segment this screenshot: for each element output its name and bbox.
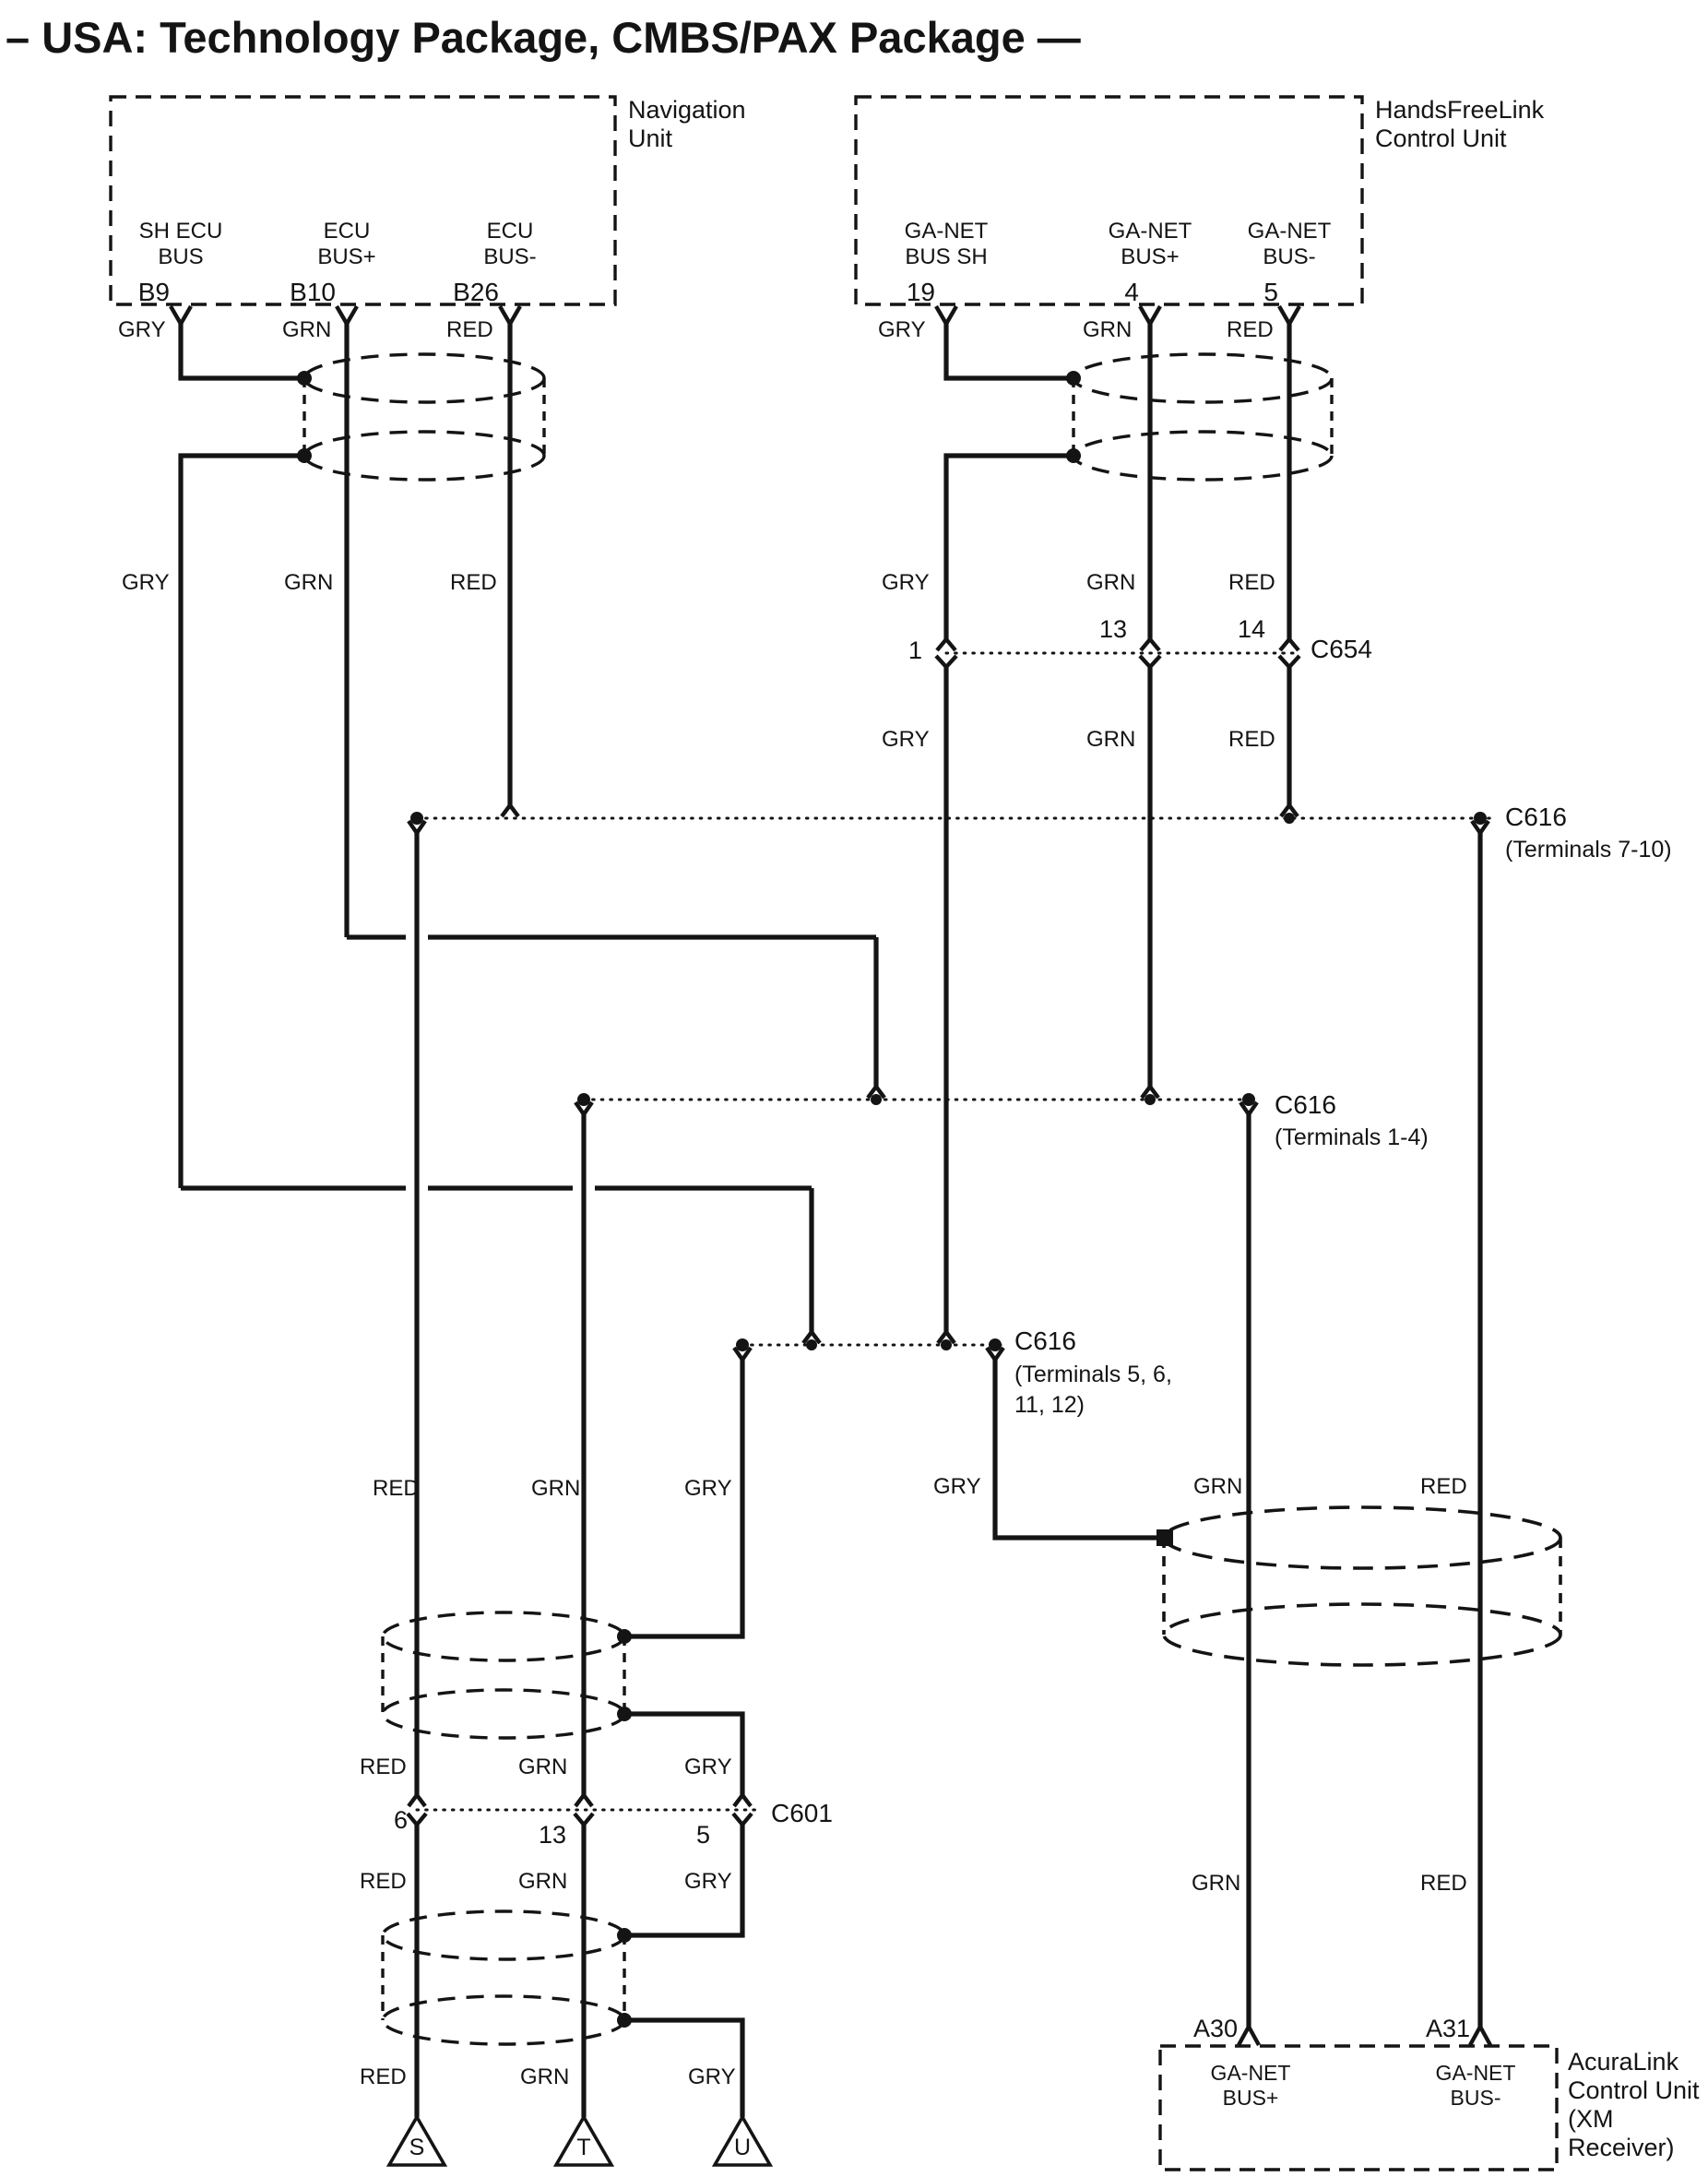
wire-color-label: RED [360,2064,407,2090]
wire-color-label: GRN [282,317,331,343]
terminal-icon-b9 [171,306,191,324]
hfl-pin-bus-plus: GA-NET BUS+ [1109,219,1192,271]
handsfreelink-unit-box [856,97,1362,304]
hfl-pin-bus-minus: GA-NET BUS- [1248,219,1332,271]
c616-7-10-note: (Terminals 7-10) [1505,835,1672,865]
nav-pin-number-b9: B9 [138,278,170,307]
terminal-icon-b10 [337,306,357,324]
wire-color-label: GRY [118,317,166,343]
terminal-icon-b26 [500,306,520,324]
wire-color-label: GRY [688,2064,736,2090]
terminal-icon-end-navred [502,805,518,816]
wire-nav-gry [181,322,812,1332]
c616-1-4-label: C616 [1275,1090,1336,1120]
hfl-pin-number-4: 4 [1124,278,1139,307]
wire-color-label: GRN [1193,1474,1242,1500]
wire-color-label: RED [373,1476,420,1502]
nav-pin-number-b10: B10 [290,278,336,307]
c654-pin-13: 13 [1099,615,1127,644]
hfl-pin-bus-sh: GA-NET BUS SH [905,219,989,271]
terminal-icon-5 [1279,306,1299,324]
ground-label-s: S [409,2135,425,2161]
wire-color-label: GRY [882,727,930,753]
c601-label: C601 [771,1799,833,1828]
terminal-icon-19 [936,306,956,324]
wire-nav-grn [347,322,876,1087]
wire-color-label: GRN [531,1476,580,1502]
wire-color-label: RED [1228,570,1275,596]
terminal-icon-a31 [1470,2027,1490,2045]
wire-color-label: GRN [518,1755,567,1780]
wire-color-label: GRY [933,1474,981,1500]
c654-pin-1: 1 [908,636,922,665]
c616-5-6-11-12-label: C616 [1014,1326,1076,1356]
c654-label: C654 [1311,635,1372,664]
nav-pin-bus-minus: ECU BUS- [483,219,536,271]
wire-color-label: GRY [122,570,170,596]
wire-color-label: GRN [520,2064,569,2090]
wire-color-label: GRY [882,570,930,596]
handsfreelink-unit-label: HandsFreeLink Control Unit [1375,96,1544,153]
c601-pin-6: 6 [394,1806,408,1835]
c654-pin-14: 14 [1238,615,1265,644]
wire-color-label: RED [1420,1871,1467,1897]
c601-pin-13: 13 [539,1821,566,1850]
c616-7-10-label: C616 [1505,803,1567,832]
c616-5-6-11-12-note: (Terminals 5, 6, 11, 12) [1014,1360,1172,1420]
shield-symbol-hfl [1073,354,1332,480]
nav-pin-bus-sh-ecu: SH ECU BUS [139,219,223,271]
wire-color-label: GRN [1086,570,1135,596]
wire-color-label: GRN [1083,317,1132,343]
nav-pin-bus-plus: ECU BUS+ [317,219,375,271]
ground-label-u: U [734,2135,751,2161]
wire-color-label: RED [446,317,493,343]
ground-label-t: T [576,2135,590,2161]
wire-color-label: GRY [684,1869,732,1895]
shield-symbol-right-large [1164,1507,1560,1665]
navigation-unit-box [111,97,615,304]
navigation-unit-label: Navigation Unit [628,96,746,153]
c616-1-4-note: (Terminals 1-4) [1275,1123,1429,1153]
terminal-icon-a30 [1239,2027,1259,2045]
acuralink-pin-bus-plus: GA-NET BUS+ [1211,2061,1291,2111]
wire-hfl-gry [946,322,1073,1332]
junction-dots [297,371,1487,2028]
wiring-diagram-page: – USA: Technology Package, CMBS/PAX Pack… [0,0,1708,2177]
hfl-pin-number-19: 19 [907,278,935,307]
c601-pin-5: 5 [696,1821,710,1850]
wire-color-label: RED [360,1755,407,1780]
wire-color-label: GRY [684,1476,732,1502]
wire-color-label: GRN [1192,1871,1240,1897]
nav-pin-number-b26: B26 [453,278,499,307]
wire-color-label: GRN [1086,727,1135,753]
acuralink-pin-bus-minus: GA-NET BUS- [1436,2061,1516,2111]
terminal-icon-4 [1140,306,1160,324]
wire-color-label: RED [1420,1474,1467,1500]
acuralink-unit-label: AcuraLink Control Unit (XM Receiver) [1568,2048,1700,2162]
wire-gry-left-drop [624,1359,742,2117]
acuralink-pin-number-a31: A31 [1426,2015,1470,2043]
wire-color-label: RED [1227,317,1274,343]
wire-color-label: RED [1228,727,1275,753]
wiring-diagram-canvas [0,0,1708,2177]
wire-color-label: GRY [684,1755,732,1780]
wire-color-label: GRN [284,570,333,596]
hfl-pin-number-5: 5 [1263,278,1278,307]
wire-color-label: GRY [878,317,926,343]
wire-color-label: RED [450,570,497,596]
page-title: – USA: Technology Package, CMBS/PAX Pack… [6,13,1081,64]
wire-color-label: RED [360,1869,407,1895]
wire-color-label: GRN [518,1869,567,1895]
acuralink-pin-number-a30: A30 [1193,2015,1238,2043]
